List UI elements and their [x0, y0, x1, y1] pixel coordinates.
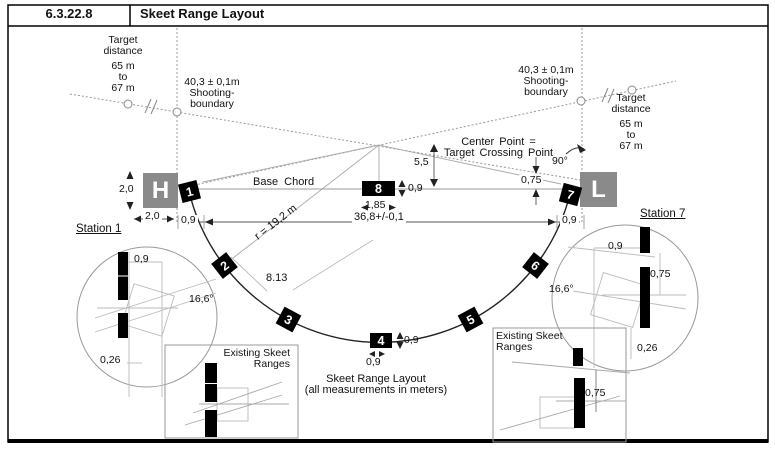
caption-line2: (all measurements in meters) [276, 385, 476, 396]
existing-right-line2: Ranges [496, 342, 570, 353]
station7-detail-offset: 0,75 [650, 269, 670, 280]
station-4-marker: 4 [370, 333, 392, 348]
high-house-marker: H [143, 173, 178, 208]
house-height-value: 2,0 [117, 184, 136, 195]
station7-detail-width: 0,9 [608, 241, 623, 252]
station1-detail-width: 0,9 [134, 254, 149, 265]
station1-detail-board: 0,26 [100, 355, 120, 366]
sagitta-value: 5,5 [412, 157, 431, 168]
page-title: Skeet Range Layout [140, 8, 264, 19]
station1-detail-circle [77, 247, 217, 397]
left-target-line2: distance [86, 46, 160, 57]
station4-width-value: 0,9 [366, 357, 381, 368]
station-gap-leaders [231, 240, 373, 291]
station7-detail-title: Station 7 [640, 209, 685, 220]
drawing-caption: Skeet Range Layout (all measurements in … [276, 374, 476, 396]
existing-left-line2: Ranges [216, 359, 290, 370]
station8-height-value: 0,9 [408, 183, 423, 194]
center-point-line2: Target Crossing Point [436, 148, 561, 159]
right-shooting-boundary-label: 40,3 ± 0,1m Shooting- boundary [508, 65, 584, 98]
house-width-value: 2,0 [143, 211, 162, 222]
left-offset-value: 0,9 [179, 215, 198, 226]
station1-detail-title: Station 1 [76, 224, 121, 235]
station7-detail-board: 0,26 [637, 343, 657, 354]
right-offset-value: 0,9 [560, 215, 579, 226]
right-boundary-line3: boundary [508, 87, 584, 98]
station4-height-value: 0,9 [404, 335, 419, 346]
right-target-line2: distance [594, 104, 668, 115]
chord-width-value: 36,8+/-0,1 [352, 212, 406, 223]
right-angle-value: 90° [552, 156, 568, 167]
low-house-marker: L [580, 172, 617, 207]
left-target-distance-label: Target distance 65 m to 67 m [86, 35, 160, 94]
right-target-distance-label: Target distance 65 m to 67 m [594, 93, 668, 152]
station8-width-value: 1,85 [365, 200, 385, 211]
left-target-line5: 67 m [86, 83, 160, 94]
existing-ranges-right-label: Existing Skeet Ranges [496, 331, 570, 353]
section-code: 6.3.22.8 [8, 8, 130, 19]
existing-ranges-left-label: Existing Skeet Ranges [216, 348, 290, 370]
base-chord-label: Base Chord [253, 177, 314, 188]
left-shooting-boundary-label: 40,3 ± 0,1m Shooting- boundary [174, 77, 250, 110]
right-target-line5: 67 m [594, 141, 668, 152]
station7-detail-angle: 16,6° [549, 284, 574, 295]
right-angle-arrow [566, 144, 586, 154]
station-8-marker: 8 [362, 181, 395, 196]
skeet-range-layout-drawing: 6.3.22.8 Skeet Range Layout H L 1 2 3 4 … [0, 0, 775, 450]
station1-detail-angle: 16,6° [189, 294, 214, 305]
existing-right-offset-value: 0,75 [585, 388, 605, 399]
station-gap-value: 8.13 [266, 273, 287, 284]
center-point-label: Center Point = Target Crossing Point [436, 137, 561, 159]
flightline-offset-value: 0,75 [519, 175, 543, 186]
left-boundary-line3: boundary [174, 99, 250, 110]
